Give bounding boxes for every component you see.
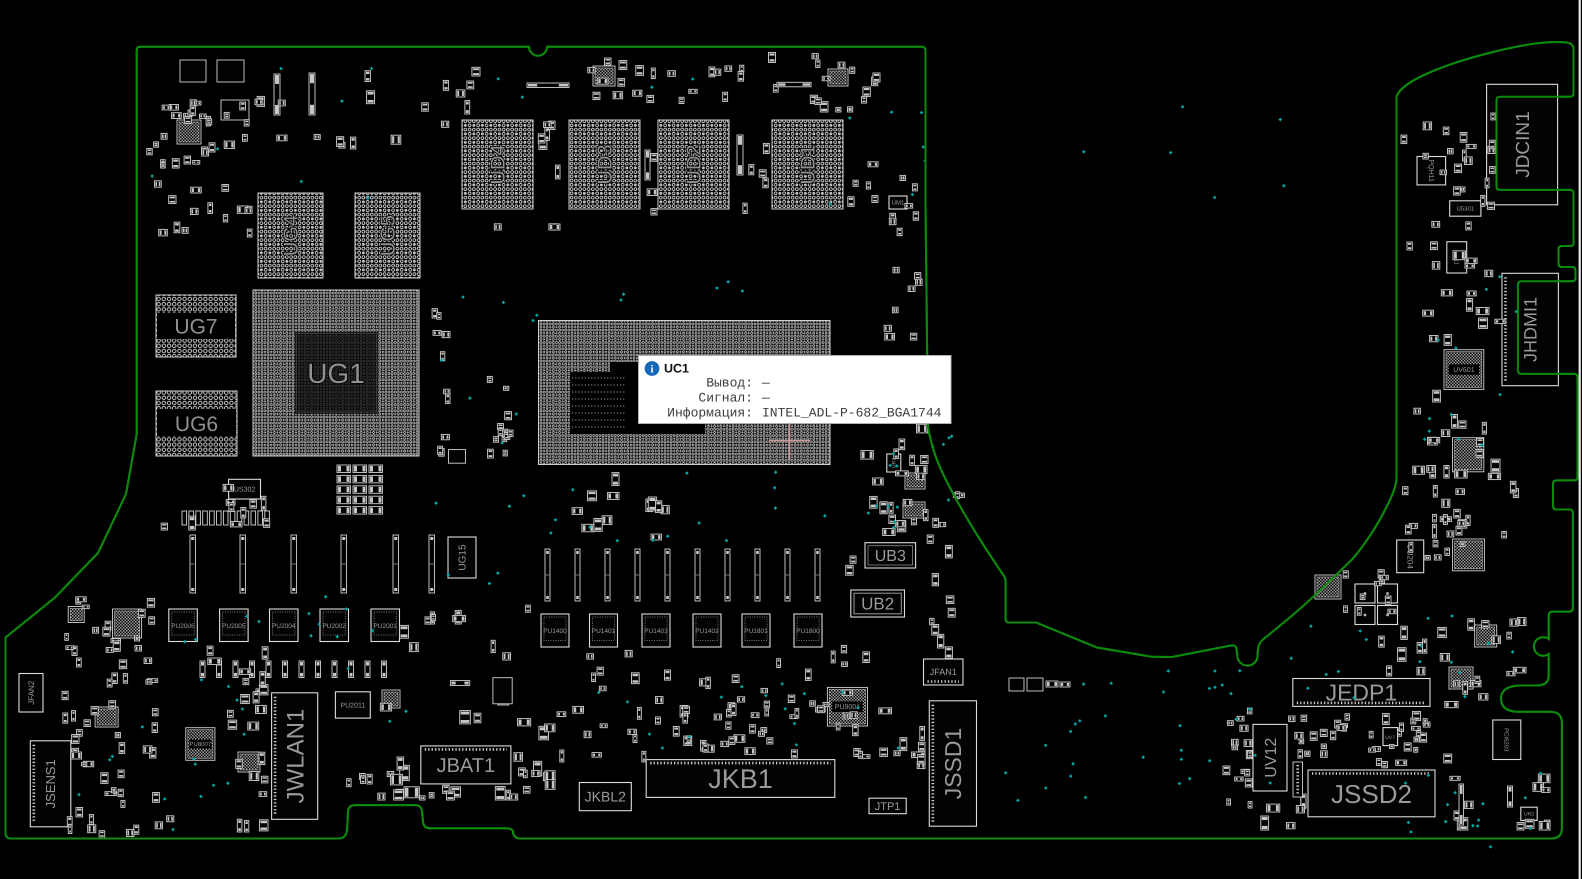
svg-text:PU1401: PU1401 <box>592 628 616 635</box>
svg-text:Вывод:: Вывод: <box>706 376 753 391</box>
svg-text:UG5: UG5 <box>378 215 400 256</box>
svg-text:PU1800: PU1800 <box>796 628 820 635</box>
svg-text:UG15: UG15 <box>458 544 469 571</box>
svg-text:JKB1: JKB1 <box>708 764 773 794</box>
svg-text:JHDMI1: JHDMI1 <box>1521 297 1541 362</box>
svg-text:UG4: UG4 <box>281 215 303 256</box>
svg-text:UB2: UB2 <box>861 595 894 614</box>
svg-text:JSENS1: JSENS1 <box>43 759 58 808</box>
svg-text:UV601: UV601 <box>1453 367 1475 374</box>
svg-text:—: — <box>761 376 770 391</box>
svg-text:PU2004: PU2004 <box>272 623 296 630</box>
svg-text:PU2001: PU2001 <box>373 623 397 630</box>
svg-text:JTP1: JTP1 <box>875 801 901 813</box>
svg-text:JFAN1: JFAN1 <box>930 667 957 677</box>
svg-text:JKBL2: JKBL2 <box>585 789 626 805</box>
svg-text:PU9001: PU9001 <box>835 704 860 711</box>
svg-text:U5301: U5301 <box>1456 206 1474 213</box>
svg-text:UG7: UG7 <box>174 316 217 339</box>
svg-text:JSSD2: JSSD2 <box>1331 779 1412 809</box>
svg-text:PQH11: PQH11 <box>1427 159 1434 182</box>
svg-text:PU2002: PU2002 <box>322 623 346 630</box>
svg-text:UG1: UG1 <box>307 358 365 389</box>
svg-text:US302: US302 <box>234 487 256 494</box>
svg-text:UD2: UD2 <box>684 144 706 184</box>
svg-text:UV7: UV7 <box>1385 735 1395 741</box>
svg-text:PU1801: PU1801 <box>744 628 768 635</box>
svg-text:PU2006: PU2006 <box>171 623 195 630</box>
svg-text:i: i <box>650 364 653 376</box>
svg-text:JFAN2: JFAN2 <box>27 680 36 705</box>
svg-text:Сигнал:: Сигнал: <box>698 391 753 406</box>
svg-text:PU1400: PU1400 <box>543 628 567 635</box>
svg-text:PU2011: PU2011 <box>340 702 365 709</box>
svg-text:PU1403: PU1403 <box>644 628 668 635</box>
svg-text:UD3: UD3 <box>595 144 617 184</box>
svg-text:Информация:: Информация: <box>667 406 753 421</box>
svg-text:JBAT1: JBAT1 <box>437 755 496 777</box>
svg-text:UD1: UD1 <box>798 144 820 184</box>
svg-text:UC1: UC1 <box>664 362 689 376</box>
svg-text:UV12: UV12 <box>1263 738 1280 778</box>
svg-text:UD4: UD4 <box>488 144 510 184</box>
svg-text:INTEL_ADL-P-682_BGA1744: INTEL_ADL-P-682_BGA1744 <box>762 406 942 421</box>
svg-text:PU2005: PU2005 <box>222 623 246 630</box>
svg-text:JDCIN1: JDCIN1 <box>1513 111 1534 178</box>
svg-text:JSSD1: JSSD1 <box>940 728 966 800</box>
svg-text:UR2: UR2 <box>1524 812 1534 818</box>
svg-text:—: — <box>761 391 770 406</box>
svg-text:UM1: UM1 <box>892 200 905 207</box>
svg-text:PCI6203: PCI6203 <box>1503 728 1510 752</box>
svg-text:UG6: UG6 <box>175 413 218 436</box>
svg-text:UB3: UB3 <box>875 548 906 565</box>
svg-text:PU1402: PU1402 <box>695 628 719 635</box>
svg-text:JWLAN1: JWLAN1 <box>282 709 309 804</box>
svg-text:PU8007: PU8007 <box>190 741 212 748</box>
